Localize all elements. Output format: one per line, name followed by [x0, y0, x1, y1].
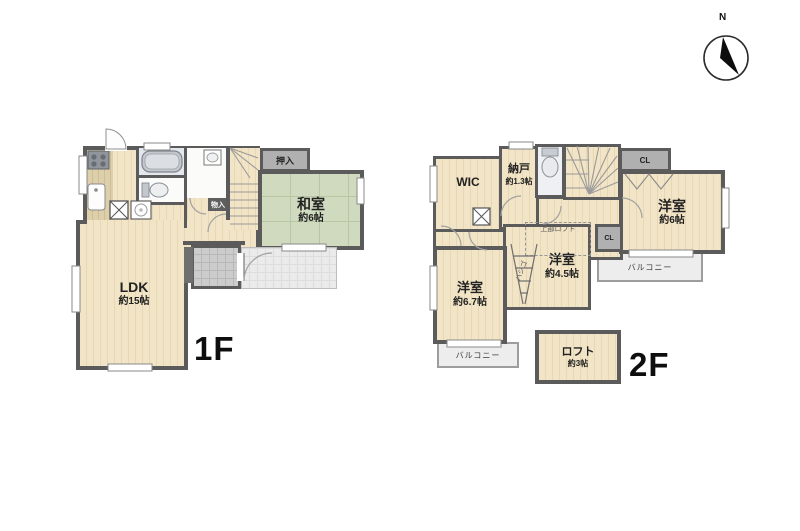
floor2-cl-top-closet: CL: [619, 148, 671, 172]
upper-loft-label: 上部ロフト: [541, 224, 576, 234]
compass-north-label: N: [719, 12, 726, 23]
ldk-size: 約15帖: [118, 296, 149, 308]
balcony-right-label: バルコニー: [628, 262, 673, 273]
loft-name: ロフト: [562, 346, 595, 359]
room6-size: 約6帖: [659, 215, 685, 227]
floor2-plan: バルコニー バルコニー WIC 納戸 約1.3帖 CL 洋室 約6帖 CL 洋室…: [425, 138, 737, 390]
compass-rose-icon: [700, 12, 752, 88]
floor1-genkan: [191, 245, 241, 289]
floor1-toilet-room: [138, 178, 186, 202]
floor1-washitsu-room: 和室 約6帖: [258, 170, 364, 250]
floor2-loft-room: ロフト 約3帖: [535, 330, 621, 384]
floor2-room6: 洋室 約6帖: [619, 170, 725, 254]
washitsu-name: 和室: [297, 196, 325, 212]
loft-size: 約3帖: [568, 359, 588, 368]
room45-size: 約4.5帖: [545, 269, 579, 281]
oshiire-label: 押入: [276, 154, 294, 167]
floor2-room67: 洋室 約6.7帖: [433, 246, 507, 344]
floor1-bathroom: [138, 148, 186, 176]
room6-name: 洋室: [658, 198, 686, 214]
compass: N: [700, 12, 752, 88]
floor1-plan: 押入 和室 約6帖 LDK 約15帖 物入 1F: [58, 120, 380, 382]
nando-name: 納戸: [508, 163, 530, 176]
floor1-label: 1F: [194, 330, 235, 368]
floor1-oshiire-closet: 押入: [260, 148, 310, 172]
floorplan-page: { "compass": { "north": "N" }, "floor1":…: [0, 0, 800, 531]
floor2-cl-mid-closet: CL: [595, 224, 623, 252]
floor1-porch: [241, 247, 337, 289]
nando-size: 約1.3帖: [505, 177, 532, 186]
floor1-kitchen-floor: [87, 150, 113, 224]
room67-size: 約6.7帖: [453, 297, 487, 309]
floor1-stairs: [228, 148, 260, 230]
floor1-washroom: [186, 148, 228, 198]
monoire-label: 物入: [211, 200, 225, 210]
room67-name: 洋室: [457, 281, 483, 296]
floor1-monoire-storage: 物入: [208, 198, 228, 211]
floor2-toilet-room: [535, 144, 565, 198]
washitsu-size: 約6帖: [298, 213, 324, 225]
balcony-left-label: バルコニー: [456, 350, 501, 361]
cl-top-label: CL: [640, 156, 651, 165]
wic-label: WIC: [456, 176, 479, 190]
floor2-upper-loft-zone: 上部ロフト: [525, 222, 591, 256]
floor2-nando-room: 納戸 約1.3帖: [499, 146, 539, 230]
floor2-label: 2F: [629, 346, 670, 384]
cl-mid-label: CL: [604, 235, 613, 242]
floor2-balcony-left: バルコニー: [437, 342, 519, 368]
ldk-name: LDK: [120, 279, 149, 295]
floor2-wic-room: WIC: [433, 156, 503, 232]
floor1-ldk-room: LDK 約15帖: [76, 220, 188, 370]
floor2-stairs: [563, 144, 621, 200]
